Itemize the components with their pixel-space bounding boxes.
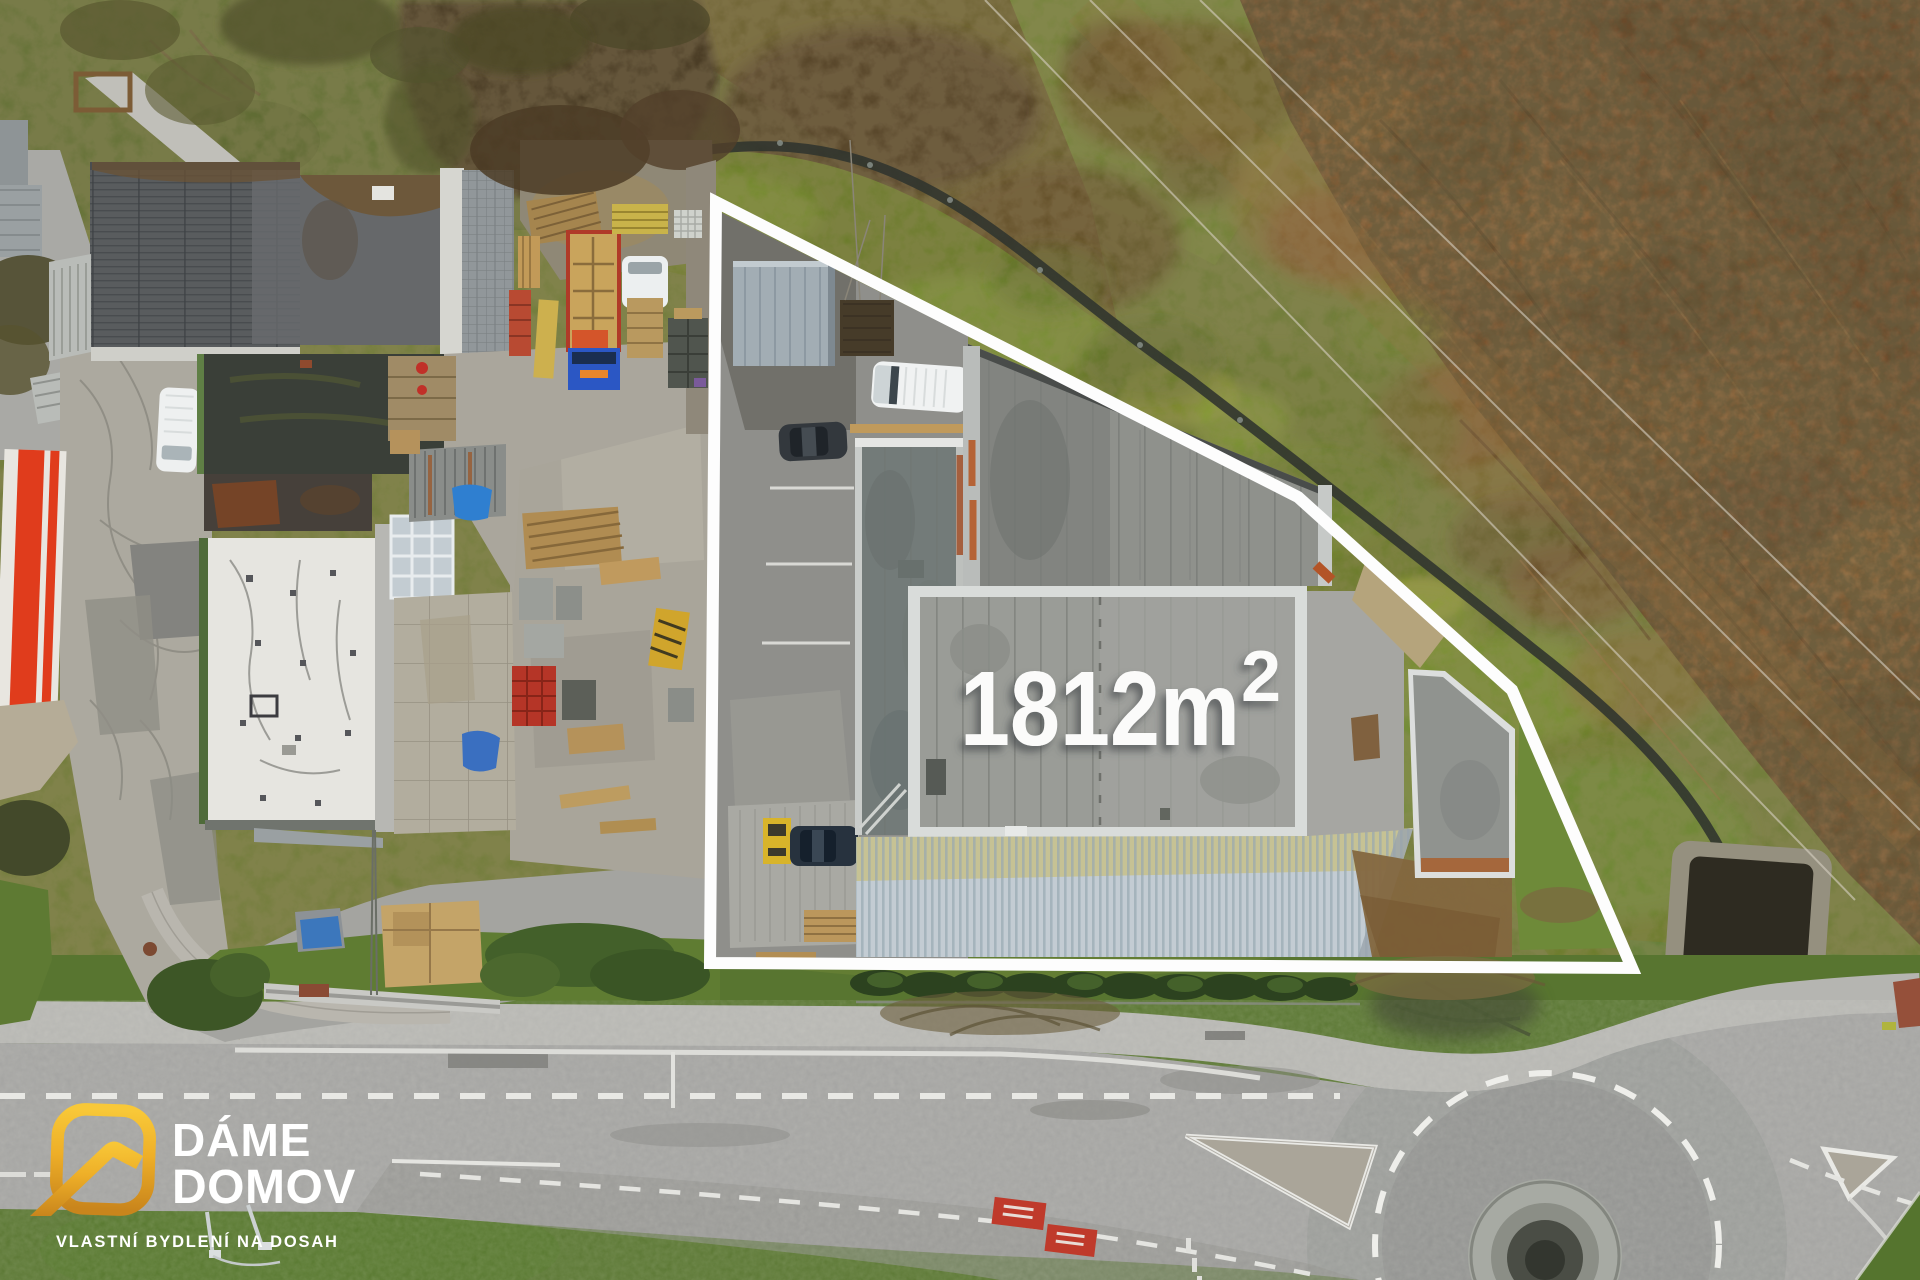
svg-text:1812m: 1812m (960, 650, 1240, 768)
svg-text:DOMOV: DOMOV (172, 1161, 356, 1214)
svg-text:2: 2 (1241, 637, 1281, 717)
svg-text:VLASTNÍ BYDLENÍ NA DOSAH: VLASTNÍ BYDLENÍ NA DOSAH (56, 1232, 339, 1251)
svg-text:DÁME: DÁME (172, 1114, 311, 1166)
